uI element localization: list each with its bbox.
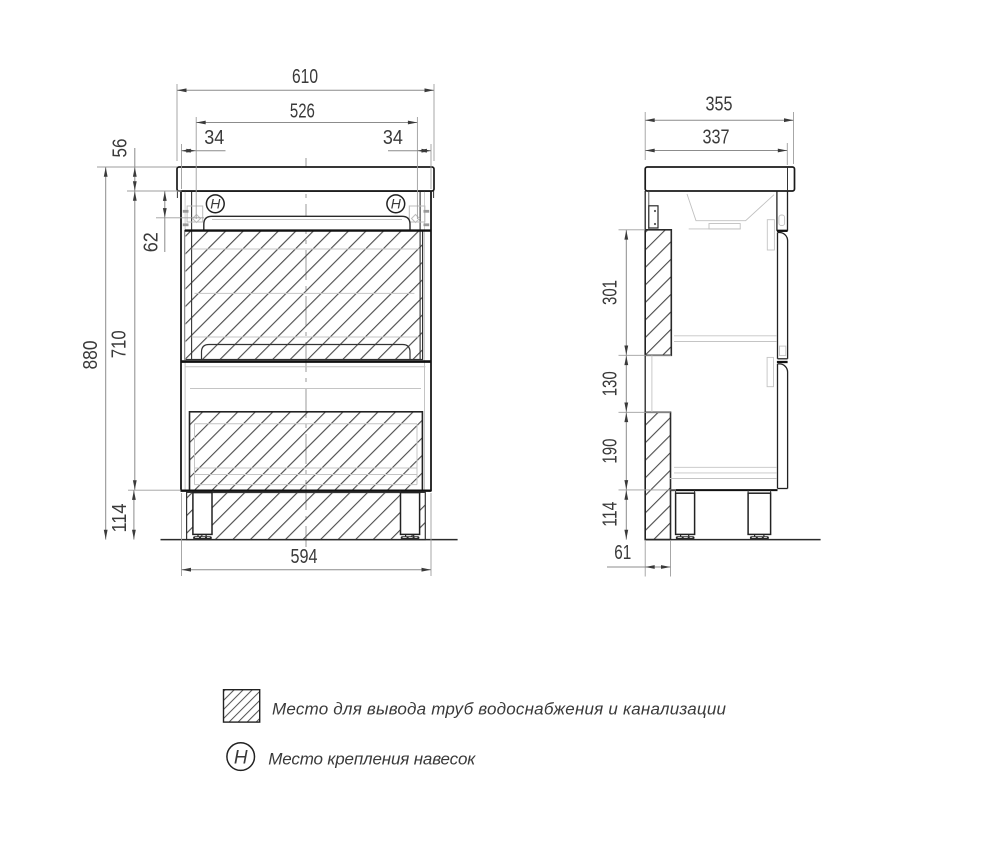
svg-text:34: 34 [204, 127, 224, 149]
svg-text:355: 355 [706, 94, 733, 116]
svg-text:190: 190 [600, 439, 622, 464]
svg-text:130: 130 [600, 371, 622, 396]
svg-text:880: 880 [80, 341, 102, 370]
svg-text:62: 62 [140, 232, 162, 252]
svg-text:56: 56 [110, 139, 132, 158]
svg-text:114: 114 [109, 504, 131, 533]
svg-text:61: 61 [614, 542, 631, 564]
svg-text:Место для вывода труб водоснаб: Место для вывода труб водоснабжения и ка… [272, 700, 727, 719]
svg-text:34: 34 [383, 127, 403, 149]
svg-text:526: 526 [290, 101, 315, 123]
svg-text:Место крепления навесок: Место крепления навесок [268, 750, 476, 769]
svg-text:301: 301 [600, 280, 622, 305]
svg-text:H: H [210, 196, 221, 212]
svg-text:337: 337 [703, 127, 730, 149]
svg-text:114: 114 [600, 502, 622, 527]
svg-text:H: H [234, 748, 248, 769]
svg-text:610: 610 [292, 66, 318, 88]
svg-text:710: 710 [109, 330, 131, 358]
svg-text:594: 594 [291, 546, 318, 568]
svg-text:H: H [391, 196, 402, 212]
